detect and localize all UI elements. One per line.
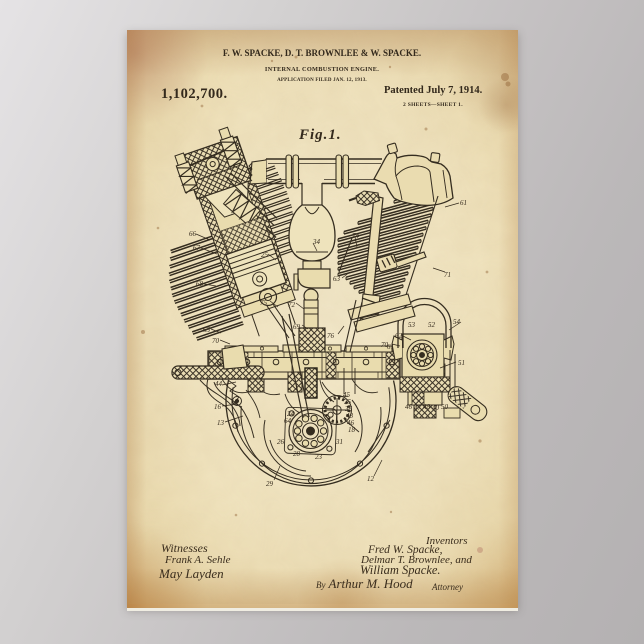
svg-text:25: 25 — [261, 251, 269, 259]
svg-text:18: 18 — [348, 426, 356, 434]
svg-text:34: 34 — [312, 238, 321, 246]
svg-text:74: 74 — [352, 232, 360, 240]
svg-text:65: 65 — [203, 326, 211, 334]
svg-text:31: 31 — [335, 438, 343, 446]
svg-text:12: 12 — [367, 475, 375, 483]
svg-text:72: 72 — [288, 301, 296, 309]
svg-text:26: 26 — [277, 438, 285, 446]
svg-text:50: 50 — [441, 403, 449, 411]
svg-text:62: 62 — [395, 332, 403, 340]
svg-text:16: 16 — [214, 403, 222, 411]
svg-text:71: 71 — [444, 271, 451, 279]
svg-text:29: 29 — [266, 480, 274, 488]
svg-text:40: 40 — [432, 404, 440, 412]
svg-text:23: 23 — [315, 453, 323, 461]
svg-text:13: 13 — [217, 419, 225, 427]
svg-text:46: 46 — [405, 403, 413, 411]
svg-text:61: 61 — [460, 199, 467, 207]
svg-text:44: 44 — [215, 380, 223, 388]
svg-text:76: 76 — [327, 332, 335, 340]
svg-text:67: 67 — [193, 244, 201, 252]
svg-text:47: 47 — [414, 404, 422, 412]
svg-text:48: 48 — [423, 403, 431, 411]
svg-text:64: 64 — [284, 417, 292, 425]
svg-text:53: 53 — [408, 321, 416, 329]
svg-text:68: 68 — [196, 280, 204, 288]
svg-text:75: 75 — [260, 299, 268, 307]
svg-text:52: 52 — [428, 321, 436, 329]
svg-text:63: 63 — [333, 275, 341, 283]
svg-text:70: 70 — [212, 337, 220, 345]
svg-text:66: 66 — [189, 230, 197, 238]
svg-text:28: 28 — [293, 450, 301, 458]
svg-text:51: 51 — [458, 359, 465, 367]
svg-text:69: 69 — [293, 323, 301, 331]
